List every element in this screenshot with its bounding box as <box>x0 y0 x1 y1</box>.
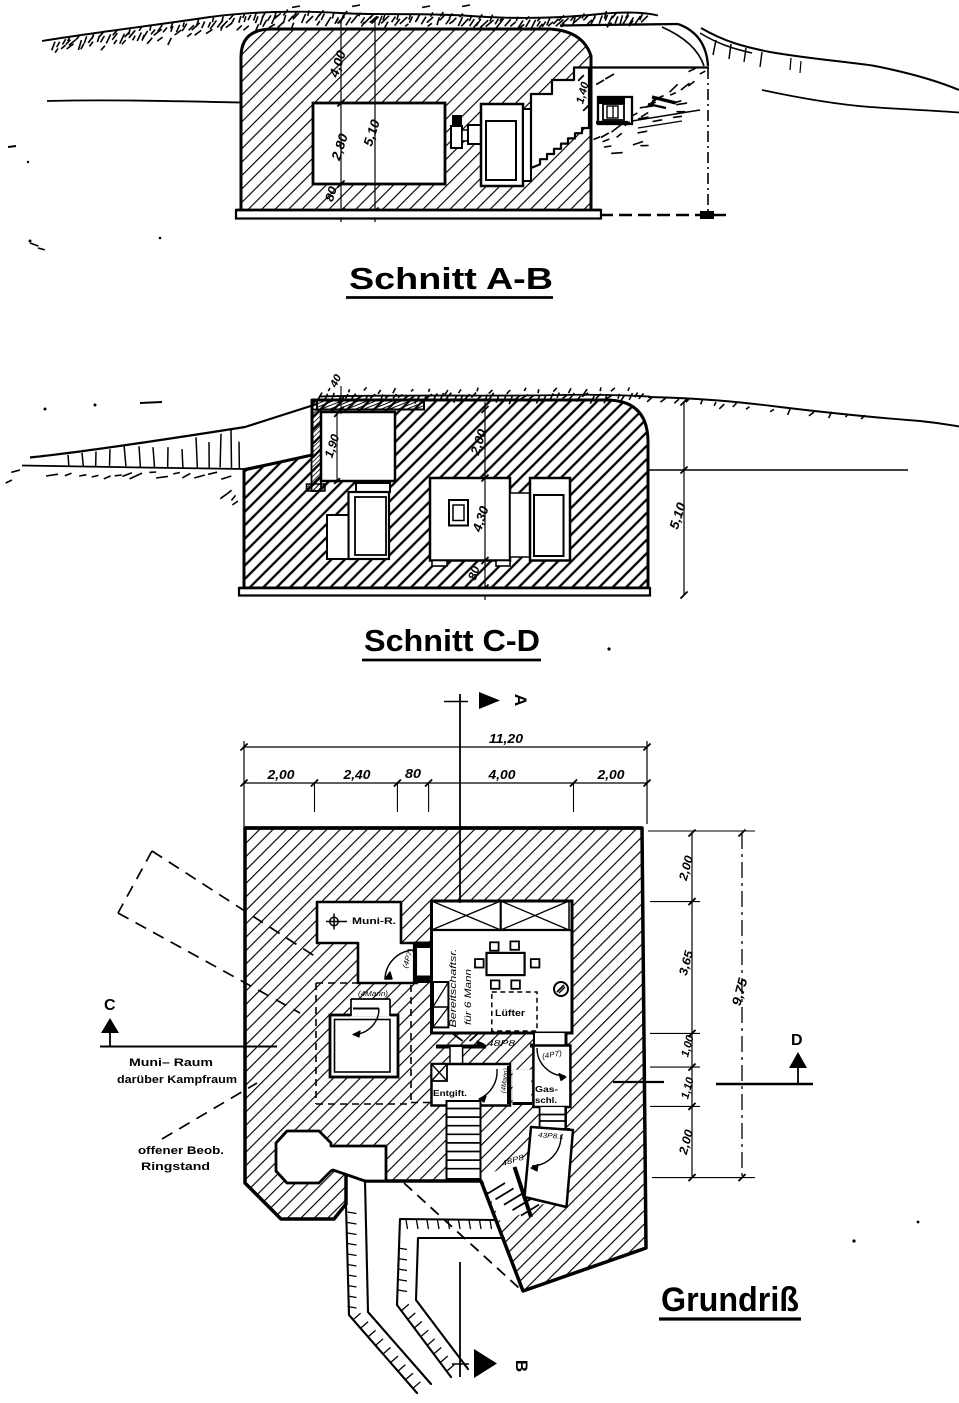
svg-text:80: 80 <box>405 767 421 781</box>
svg-text:schl.: schl. <box>535 1095 557 1105</box>
svg-text:Lüfter: Lüfter <box>495 1008 526 1018</box>
svg-text:offener Beob.: offener Beob. <box>138 1145 224 1157</box>
svg-text:C: C <box>104 997 116 1014</box>
svg-text:Bereitschaftsr.: Bereitschaftsr. <box>448 949 459 1028</box>
svg-text:Muni-R.: Muni-R. <box>352 916 396 927</box>
svg-text:für 6 Mann: für 6 Mann <box>463 969 474 1025</box>
svg-text:(4Mann): (4Mann) <box>358 989 389 998</box>
svg-text:48P8: 48P8 <box>487 1038 515 1048</box>
svg-text:2,00: 2,00 <box>266 768 294 782</box>
svg-text:2,00: 2,00 <box>596 768 624 782</box>
svg-text:D: D <box>791 1032 803 1049</box>
svg-text:Entgift.: Entgift. <box>433 1088 467 1098</box>
svg-text:11,20: 11,20 <box>489 731 524 746</box>
svg-text:A: A <box>511 694 530 706</box>
svg-text:2,40: 2,40 <box>342 768 370 782</box>
svg-text:Gas-: Gas- <box>535 1084 558 1094</box>
svg-text:B: B <box>512 1360 531 1372</box>
svg-text:Schnitt C-D: Schnitt C-D <box>364 623 540 658</box>
svg-text:Schnitt A-B: Schnitt A-B <box>349 261 553 296</box>
svg-text:Ringstand: Ringstand <box>141 1161 210 1173</box>
svg-text:4,00: 4,00 <box>487 768 515 782</box>
svg-text:Grundriß: Grundriß <box>661 1281 799 1319</box>
svg-text:darüber Kampfraum: darüber Kampfraum <box>117 1074 237 1086</box>
svg-text:Muni– Raum: Muni– Raum <box>129 1057 213 1069</box>
